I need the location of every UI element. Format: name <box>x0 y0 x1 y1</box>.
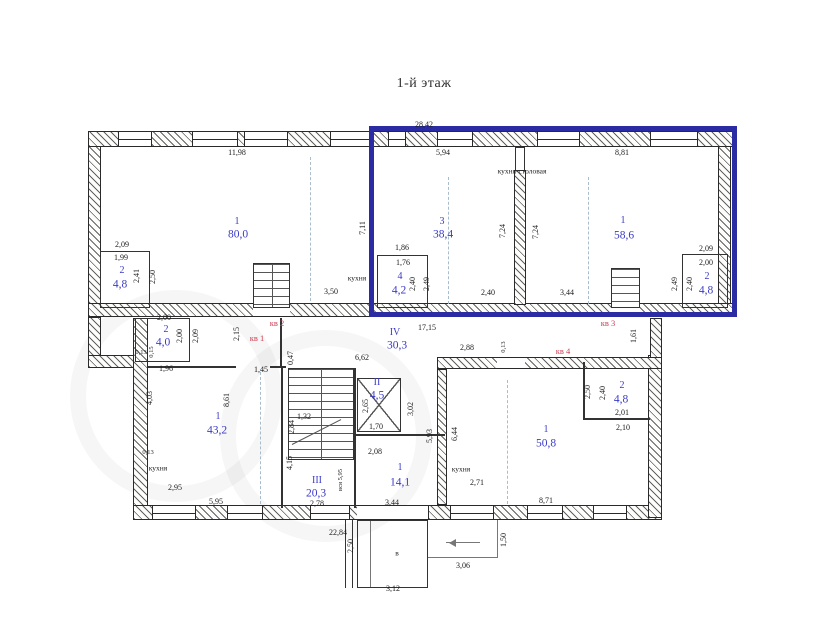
room-area-80-0: 80,0 <box>228 229 248 241</box>
dim-1-50: 1,50 <box>500 533 508 547</box>
dim-7-11: 7,11 <box>359 221 367 235</box>
labels-layer: 28,4211,985,948,81кухня-столовая7,117,24… <box>0 0 819 636</box>
dim-3-06: 3,06 <box>456 562 470 570</box>
dim-1-32: 1,32 <box>297 413 311 421</box>
room-area-4-8-ul: 4,8 <box>113 279 127 291</box>
dim-2-09-v: 2,09 <box>192 329 200 343</box>
dim-3-44-up: 3,44 <box>560 289 574 297</box>
dim-22-84: 22,84 <box>329 529 347 537</box>
dim-3-50: 3,50 <box>324 288 338 296</box>
apartment-label-2: кв 2 <box>270 319 285 328</box>
dim-11-98: 11,98 <box>228 149 246 157</box>
dim-2-88: 2,88 <box>460 344 474 352</box>
dim-0-47: 0,47 <box>287 351 295 365</box>
dim-5-94: 5,94 <box>436 149 450 157</box>
dim-vsya-5-95: вся 5,95 <box>338 469 345 491</box>
room-num-1-kv1-main: 1 <box>216 412 221 422</box>
note-kitchen-kv4: кухня <box>452 465 471 473</box>
room-area-4-8-kv4: 4,8 <box>614 394 628 406</box>
dim-2-95: 2,95 <box>168 484 182 492</box>
dim-1-86: 1,86 <box>395 244 409 252</box>
dim-6-44: 6,44 <box>451 427 459 441</box>
note-kitchen-dining: кухня-столовая <box>498 167 547 175</box>
note-kitchen-kv1: кухня <box>149 464 168 472</box>
dim-2-00-ur: 2,00 <box>699 259 713 267</box>
room-area-4-0: 4,0 <box>156 337 170 349</box>
dim-2-71: 2,71 <box>470 479 484 487</box>
room-area-30-3: 30,3 <box>387 340 407 352</box>
dim-2-49-ur: 2,49 <box>671 277 679 291</box>
dim-1-45: 1,45 <box>254 366 268 374</box>
dim-2-78: 2,78 <box>310 500 324 508</box>
dim-5-95: 5,95 <box>209 498 223 506</box>
dim-2-00-v: 2,00 <box>176 329 184 343</box>
dim-0-13-b: 0,13 <box>142 450 153 457</box>
dim-0-13-m: 0,13 <box>501 341 508 352</box>
dim-2-10: 2,10 <box>616 424 630 432</box>
dim-2-15: 2,15 <box>233 327 241 341</box>
dim-2-40-bl: 2,40 <box>409 277 417 291</box>
note-entrance: в <box>395 549 399 557</box>
apartment-label-1: кв 1 <box>250 334 265 343</box>
dim-3-44-low: 3,44 <box>385 499 399 507</box>
dim-2-65: 2,65 <box>362 399 370 413</box>
room-area-50-8: 50,8 <box>536 438 556 450</box>
room-num-2-ur: 2 <box>705 272 710 282</box>
dim-2-40-ur: 2,40 <box>686 277 694 291</box>
dim-7-24-b: 7,24 <box>532 225 540 239</box>
dim-0-15: 0,15 <box>149 346 156 357</box>
dim-7-24-a: 7,24 <box>499 224 507 238</box>
dim-2-00-k1: 2,00 <box>157 314 171 322</box>
dim-1-61: 1,61 <box>630 329 638 343</box>
room-area-4-8-ur: 4,8 <box>699 285 713 297</box>
dim-2-84: 2,84 <box>288 420 296 434</box>
dim-2-08: 2,08 <box>368 448 382 456</box>
room-num-1-kv3: 1 <box>621 216 626 226</box>
dim-8-61: 8,61 <box>223 393 231 407</box>
dim-4-15: 4,15 <box>286 456 294 470</box>
dim-1-76: 1,76 <box>396 259 410 267</box>
dim-1-99: 1,99 <box>114 254 128 262</box>
dim-6-62: 6,62 <box>355 354 369 362</box>
room-num-4: 4 <box>398 272 403 282</box>
room-area-14-1: 14,1 <box>390 477 410 489</box>
room-num-1-mid: 1 <box>398 463 403 473</box>
apartment-label-4: кв 4 <box>556 347 571 356</box>
dim-2-50-kv4: 2,50 <box>584 385 592 399</box>
dim-2-40-kv4: 2,40 <box>599 386 607 400</box>
floor-plan-canvas: 1-й этаж <box>0 0 819 636</box>
dim-2-50-porch: 2,50 <box>347 539 355 553</box>
dim-28-42: 28,42 <box>415 121 433 129</box>
room-num-2-kv1: 2 <box>164 325 169 335</box>
room-area-4-5: 4,5 <box>370 390 384 402</box>
dim-2-09-ur: 2,09 <box>699 245 713 253</box>
room-num-1-kv4: 1 <box>544 425 549 435</box>
room-area-38-4: 38,4 <box>433 229 453 241</box>
room-num-3-kv3: 3 <box>440 217 445 227</box>
dim-8-81: 8,81 <box>615 149 629 157</box>
room-num-II: II <box>374 378 381 388</box>
room-num-2-ul: 2 <box>120 266 125 276</box>
room-num-1-kv1: 1 <box>235 217 240 227</box>
dim-5-93: 5,93 <box>426 429 434 443</box>
dim-1-70: 1,70 <box>369 423 383 431</box>
dim-4-03: 4,03 <box>146 391 154 405</box>
dim-3-12: 3,12 <box>386 585 400 593</box>
dim-1-96: 1,96 <box>159 365 173 373</box>
note-kitchen-left: кухня <box>348 274 367 282</box>
dim-2-41: 2,41 <box>133 269 141 283</box>
dim-2-01: 2,01 <box>615 409 629 417</box>
room-area-43-2: 43,2 <box>207 425 227 437</box>
apartment-label-3: кв 3 <box>601 319 616 328</box>
dim-0-13-l: 0,13 <box>135 350 146 357</box>
room-area-4-2: 4,2 <box>392 285 406 297</box>
dim-2-40-mid: 2,40 <box>481 289 495 297</box>
dim-3-02: 3,02 <box>407 402 415 416</box>
dim-17-15: 17,15 <box>418 324 436 332</box>
room-num-2-kv4: 2 <box>620 381 625 391</box>
room-area-58-6: 58,6 <box>614 230 634 242</box>
dim-8-71: 8,71 <box>539 497 553 505</box>
dim-2-50-ul: 2,50 <box>149 270 157 284</box>
dim-2-09-ul: 2,09 <box>115 241 129 249</box>
dim-2-49-bl: 2,49 <box>423 277 431 291</box>
room-num-IV: IV <box>390 328 401 338</box>
room-num-III: III <box>312 476 322 486</box>
